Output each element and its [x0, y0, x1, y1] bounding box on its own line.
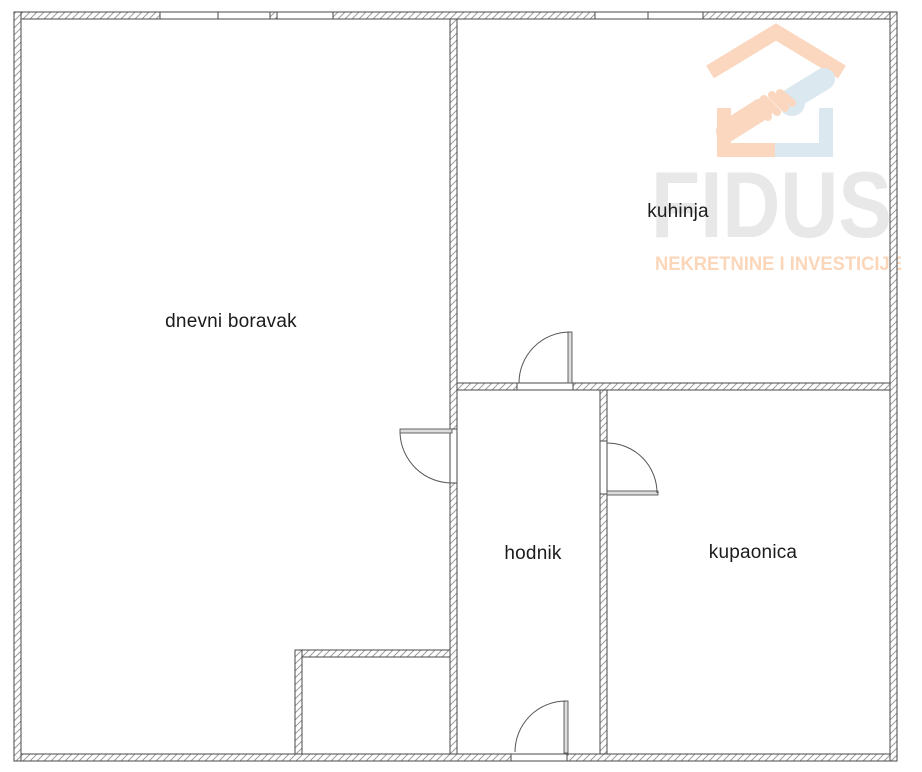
window-living-pier [270, 12, 277, 19]
wall-notch-left [295, 650, 302, 754]
door-opening-bath [600, 441, 607, 494]
wall-notch-top [295, 650, 450, 657]
door-opening-kitchen [517, 383, 573, 390]
room-label-dnevni-boravak: dnevni boravak [165, 311, 297, 333]
room-label-kuhinja: kuhinja [647, 201, 709, 223]
room-label-hodnik: hodnik [504, 543, 561, 565]
door-openings [450, 383, 607, 761]
window-living-room [160, 12, 333, 19]
door-arc-entrance [515, 701, 566, 752]
watermark-logo: FIDUS NEKRETNINE I INVESTICIJE [651, 32, 902, 275]
wall-outer-bottom [14, 754, 897, 761]
door-leaf-bath [607, 491, 658, 495]
door-arc-living [400, 433, 452, 483]
door-leaf-entrance [564, 701, 568, 753]
door-arc-kitchen [519, 332, 570, 383]
wall-outer-left [14, 12, 21, 761]
door-leaf-kitchen [568, 332, 572, 383]
wall-living-kitchen-hall [450, 19, 457, 754]
wall-outer-top [14, 12, 897, 19]
door-arc-bath [607, 443, 657, 493]
walls [14, 12, 897, 761]
wall-outer-right [890, 12, 897, 761]
room-label-kupaonica: kupaonica [709, 542, 797, 564]
floor-plan-page: FIDUS NEKRETNINE I INVESTICIJE [0, 0, 922, 772]
window-kitchen [595, 12, 703, 19]
floor-plan-drawing: FIDUS NEKRETNINE I INVESTICIJE [0, 0, 922, 772]
door-leaf-living [400, 429, 452, 433]
door-opening-living [450, 429, 457, 483]
logo-handshake-icon [727, 79, 824, 131]
brand-tagline: NEKRETNINE I INVESTICIJE [655, 254, 902, 275]
logo-house-roof-icon [710, 32, 842, 72]
door-opening-entrance [511, 754, 567, 761]
logo-house-right-wall [819, 108, 833, 157]
